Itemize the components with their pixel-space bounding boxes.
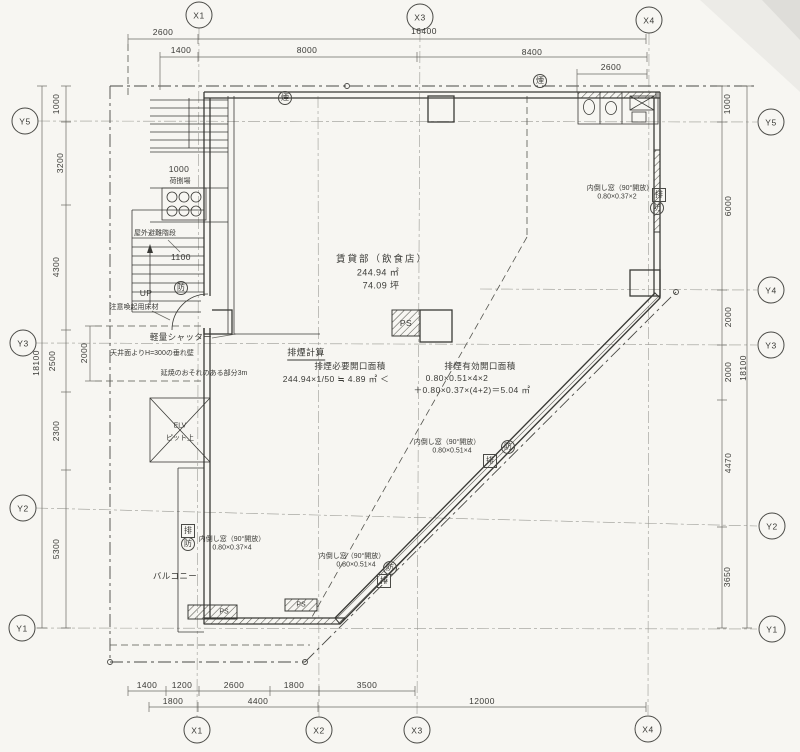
exhaust-symbol: 排 [181,524,195,538]
note-ensho: 延焼のおそれのある部分3m [161,368,248,378]
note-ps: PS [296,602,305,609]
floor-plan-drawing [0,0,800,752]
window-note-name: 内倒し窓（90°開放） [587,183,654,193]
note-up: UP [140,288,153,298]
dim-label: 2500 [47,351,57,372]
dim-label: 3500 [357,680,378,690]
dim-label: 1100 [171,252,191,262]
calc-effective-label: 排煙有効開口面積 [444,360,515,372]
fire-symbol: 防 [383,561,397,575]
grid-bubble-label: Y2 [766,521,777,531]
smoke-symbol: 煙 [278,91,292,105]
note-ps: PS [219,609,228,616]
dim-label: 1400 [171,45,192,55]
grid-bubble-y3-right: Y3 [758,332,785,359]
window-note-size: 0.80×0.37×4 [212,545,251,552]
window-note-size: 0.80×0.51×4 [432,448,471,455]
dimension-lines [37,34,752,712]
room-title: 賃貸部（飲食店） [336,251,428,265]
dim-label: 4400 [248,696,269,706]
note-tarekabe: 天井面よりH=300の垂れ壁 [110,348,194,358]
dim-label: 2000 [723,307,733,328]
window-note-size: 0.80×0.37×2 [597,194,636,201]
note-shutter: 軽量シャッター [150,331,212,343]
grid-bubble-x3-bottom: X3 [404,717,431,744]
room-area-m2: 244.94 ㎡ [357,266,399,279]
room-area-tsubo: 74.09 坪 [363,279,400,292]
grid-bubble-label: Y3 [765,340,776,350]
note-elevator: ELV [174,423,187,430]
up-arrow [147,244,153,253]
grid-bubble-y1-right: Y1 [759,616,786,643]
window-note-name: 内倒し窓（90°開放） [319,551,386,561]
dim-label: 8000 [297,45,318,55]
dim-label: 1000 [169,164,190,174]
fire-symbol: 防 [501,440,515,454]
note-loading: 荷捌場 [170,176,191,186]
calc-required-formula: 244.94×1/50 ≒ 4.89 ㎡ ＜ [283,373,389,385]
smoke-symbol: 煙 [533,74,547,88]
window-note-name: 内倒し窓（90°開放） [199,534,266,544]
grid-bubble-x4-bottom: X4 [635,716,662,743]
grid-axes [36,28,757,717]
dim-label: 2000 [79,343,89,364]
grid-bubble-label: Y3 [17,338,28,348]
dim-label: 4300 [51,257,61,278]
dim-total-label: 18100 [738,355,748,381]
grid-bubble-label: Y5 [19,116,30,126]
grid-bubble-label: Y1 [766,624,777,634]
grid-bubble-x4-top: X4 [636,7,663,34]
grid-bubble-x1-bottom: X1 [184,717,211,744]
dim-label: 2300 [51,421,61,442]
window-note-size: 0.80×0.51×4 [336,562,375,569]
grid-bubble-y2-left: Y2 [10,495,37,522]
grid-bubble-x1-top: X1 [186,2,213,29]
dim-label: 1800 [284,680,305,690]
dim-label: 1200 [172,680,193,690]
grid-bubble-label: X2 [313,725,324,735]
exhaust-symbol: 排 [483,454,497,468]
dim-label: 12000 [469,696,495,706]
dim-label: 2600 [601,62,622,72]
calc-title: 排煙計算 [287,346,325,361]
note-elevator-sub: ピット上 [166,433,194,443]
dim-label: 3200 [55,153,65,174]
grid-bubble-label: X1 [191,725,202,735]
dim-label: 1000 [51,94,61,115]
grid-bubble-label: X3 [411,725,422,735]
dim-label: 5300 [51,539,61,560]
dim-label: 1400 [137,680,158,690]
hatched-walls [188,92,660,624]
fire-symbol: 防 [174,281,188,295]
dim-label: 4470 [723,453,733,474]
calc-effective-formula2: ＋0.80×0.37×(4+2)＝5.04 ㎡ [414,384,531,396]
dim-label: 3650 [722,567,732,588]
fire-symbol: 防 [181,537,195,551]
dim-label: 8400 [522,47,543,57]
fire-symbol: 防 [650,201,664,215]
dim-label: 2600 [153,27,174,37]
grid-bubble-label: X4 [643,15,654,25]
dim-label: 2600 [224,680,245,690]
calc-required-label: 排煙必要開口面積 [314,360,385,372]
interior-elements [132,92,658,632]
note-escape-stair: 屋外避難階段 [134,228,176,238]
dim-label: 1000 [722,94,732,115]
dim-label: 2000 [723,362,733,383]
dim-label: 6000 [723,196,733,217]
grid-bubble-y5-right: Y5 [758,109,785,136]
grid-bubble-y1-left: Y1 [9,615,36,642]
note-balcony: バルコニー [153,570,197,582]
grid-bubble-x2-bottom: X2 [306,717,333,744]
grid-bubble-y2-right: Y2 [759,513,786,540]
dim-label: 16400 [411,26,437,36]
note-ps: PS [400,318,412,328]
note-warning-floor: 注意喚起用床材 [110,302,159,312]
grid-bubble-label: Y1 [16,623,27,633]
grid-bubble-y5-left: Y5 [12,108,39,135]
exhaust-symbol: 排 [652,188,666,202]
grid-bubble-label: X1 [193,10,204,20]
fire-spread-lines [95,44,527,645]
grid-bubble-y4-right: Y4 [758,277,785,304]
grid-bubble-label: Y2 [17,503,28,513]
grid-bubble-label: X4 [642,724,653,734]
calc-effective-formula1: 0.80×0.51×4×2 [426,373,489,383]
exhaust-symbol: 排 [377,574,391,588]
window-note-name: 内倒し窓（90°開放） [414,437,481,447]
grid-bubble-label: Y5 [765,117,776,127]
exterior-walls [204,92,660,624]
dim-label: 1800 [163,696,184,706]
grid-bubble-label: X3 [414,12,425,22]
grid-bubble-label: Y4 [765,285,776,295]
dim-total-label: 18100 [31,350,41,376]
floor-plan-sheet: X1 X3 X4 X1 X2 X3 X4 Y5 Y3 Y2 Y1 Y5 Y4 Y… [0,0,800,752]
